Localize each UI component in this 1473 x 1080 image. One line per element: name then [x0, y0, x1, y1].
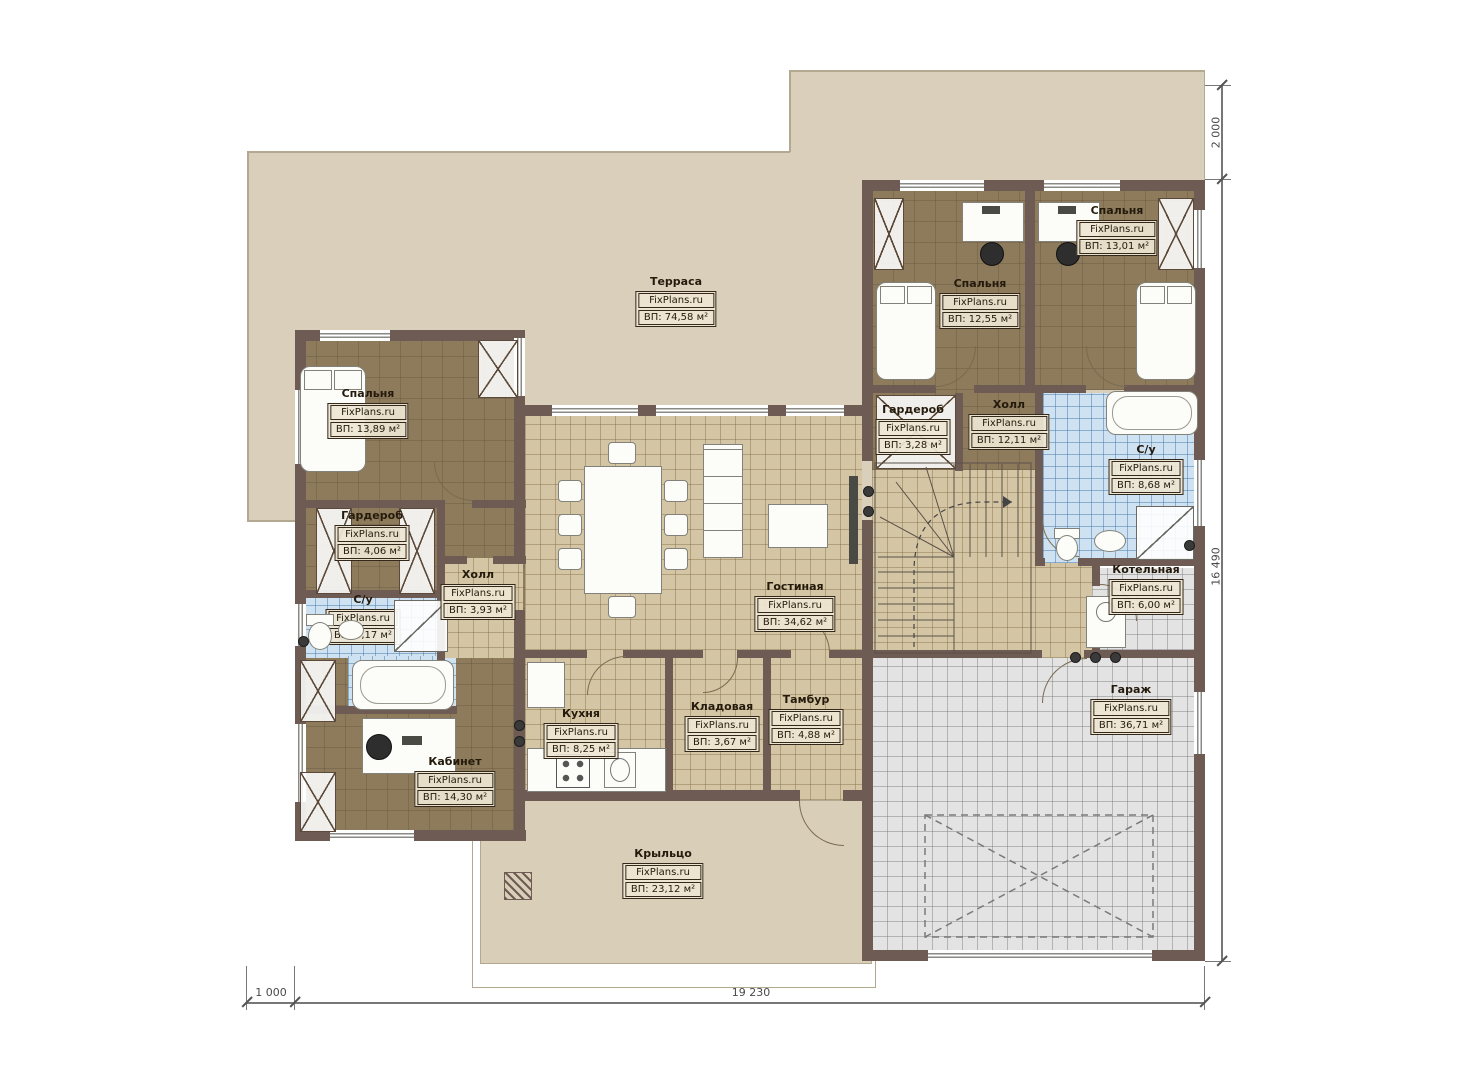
dimension-value-right-side: 16 490: [1210, 534, 1223, 600]
terrace-edge: [247, 151, 249, 522]
room-area: ВП: 23,12 м²: [625, 882, 701, 897]
porch-column: [504, 872, 532, 900]
room-info-box: FixPlans.ru ВП: 3,67 м²: [685, 716, 760, 753]
room-name: Тамбур: [769, 694, 844, 707]
room-area: ВП: 8,68 м²: [1111, 478, 1181, 493]
wall: [1025, 180, 1035, 392]
room-label-bedroom-left: Спальня FixPlans.ru ВП: 13,89 м²: [327, 388, 408, 439]
room-area: ВП: 13,89 м²: [330, 422, 406, 437]
utility-dot: [1184, 540, 1195, 551]
room-name: Гостиная: [754, 581, 835, 594]
chair: [608, 442, 636, 464]
room-label-vestibule: Тамбур FixPlans.ru ВП: 4,88 м²: [769, 694, 844, 745]
room-label-wardrobe-right: Гардероб FixPlans.ru ВП: 3,28 м²: [876, 404, 951, 455]
room-label-bath-left: С/у FixPlans.ru ВП: 5,17 м²: [326, 594, 401, 645]
room-info-box: FixPlans.ru ВП: 23,12 м²: [622, 863, 703, 900]
room-label-storage: Кладовая FixPlans.ru ВП: 3,67 м²: [685, 701, 760, 752]
brand-text: FixPlans.ru: [1093, 701, 1169, 716]
wall: [829, 650, 862, 658]
room-info-box: FixPlans.ru ВП: 12,55 м²: [939, 293, 1020, 330]
wardrobe-cabinet: [1158, 198, 1194, 270]
chair: [664, 480, 688, 502]
brand-text: FixPlans.ru: [328, 611, 398, 626]
room-name: Терраса: [635, 276, 716, 289]
room-name: Гараж: [1090, 684, 1171, 697]
room-info-box: FixPlans.ru ВП: 8,25 м²: [544, 723, 619, 760]
brand-text: FixPlans.ru: [757, 598, 833, 613]
room-name: Гардероб: [876, 404, 951, 417]
room-name: Холл: [441, 569, 516, 582]
wall: [665, 650, 673, 801]
bathtub-inner: [360, 666, 446, 704]
terrace-edge: [1204, 70, 1206, 180]
room-area: ВП: 12,11 м²: [971, 433, 1047, 448]
room-name: Крыльцо: [622, 848, 703, 861]
room-info-box: FixPlans.ru ВП: 13,01 м²: [1076, 220, 1157, 257]
chair: [558, 480, 582, 502]
coffee-table: [768, 504, 828, 548]
brand-text: FixPlans.ru: [337, 527, 407, 542]
window: [786, 405, 844, 416]
utility-dot: [298, 636, 309, 647]
staircase: [874, 462, 1032, 654]
wall: [1035, 558, 1045, 566]
dimension-line-horizontal: [247, 1002, 1205, 1004]
room-name: Кабинет: [414, 756, 495, 769]
pillow: [907, 286, 932, 304]
room-area: ВП: 3,93 м²: [443, 603, 513, 618]
room-name: Холл: [968, 399, 1049, 412]
chair: [558, 548, 582, 570]
dimension-value-right-top: 2 000: [1210, 103, 1223, 163]
wardrobe-cabinet: [478, 340, 518, 398]
sink-bowl: [610, 758, 630, 782]
room-area: ВП: 3,67 м²: [687, 735, 757, 750]
wardrobe-cabinet: [300, 660, 336, 722]
room-name: Спальня: [939, 278, 1020, 291]
brand-text: FixPlans.ru: [625, 865, 701, 880]
window: [1194, 692, 1205, 754]
window: [1044, 180, 1120, 191]
room-label-bedroom-right: Спальня FixPlans.ru ВП: 13,01 м²: [1076, 205, 1157, 256]
pillow: [1167, 286, 1192, 304]
bathtub-inner: [1112, 396, 1192, 430]
brand-text: FixPlans.ru: [638, 293, 714, 308]
terrace-edge: [247, 151, 790, 153]
room-info-box: FixPlans.ru ВП: 13,89 м²: [327, 403, 408, 440]
utility-dot: [514, 736, 525, 747]
room-label-porch: Крыльцо FixPlans.ru ВП: 23,12 м²: [622, 848, 703, 899]
brand-text: FixPlans.ru: [878, 421, 948, 436]
monitor: [402, 736, 422, 745]
garage-corridor-floor: [1035, 560, 1092, 658]
dimension-value-bottom-left: 1 000: [242, 986, 300, 999]
room-name: Кладовая: [685, 701, 760, 714]
room-name: Кухня: [544, 708, 619, 721]
window: [320, 330, 390, 341]
wall: [955, 393, 963, 471]
brand-text: FixPlans.ru: [971, 416, 1047, 431]
room-label-terrace: Терраса FixPlans.ru ВП: 74,58 м²: [635, 276, 716, 327]
room-info-box: FixPlans.ru ВП: 74,58 м²: [635, 291, 716, 328]
utility-dot: [863, 486, 874, 497]
washbasin: [338, 620, 364, 640]
room-label-bath-right: С/у FixPlans.ru ВП: 8,68 м²: [1109, 444, 1184, 495]
wall: [862, 180, 873, 461]
brand-text: FixPlans.ru: [330, 405, 406, 420]
room-label-office: Кабинет FixPlans.ru ВП: 14,30 м²: [414, 756, 495, 807]
wall: [472, 500, 526, 508]
brand-text: FixPlans.ru: [1111, 461, 1181, 476]
toilet-bowl: [1056, 535, 1078, 561]
window: [1194, 460, 1205, 526]
brand-text: FixPlans.ru: [771, 711, 841, 726]
wall: [974, 385, 1086, 393]
utility-dot: [1090, 652, 1101, 663]
brand-text: FixPlans.ru: [546, 725, 616, 740]
room-area: ВП: 4,88 м²: [771, 728, 841, 743]
room-label-wardrobe-left: Гардероб FixPlans.ru ВП: 4,06 м²: [335, 510, 410, 561]
garage-door: [928, 950, 1152, 961]
monitor: [982, 206, 1000, 214]
wall: [1092, 566, 1100, 586]
chair: [664, 548, 688, 570]
terrace-edge: [247, 520, 295, 522]
room-area: ВП: 36,71 м²: [1093, 718, 1169, 733]
room-area: ВП: 14,30 м²: [417, 790, 493, 805]
room-area: ВП: 12,55 м²: [942, 312, 1018, 327]
terrace-edge: [789, 70, 791, 152]
room-area: ВП: 13,01 м²: [1079, 239, 1155, 254]
room-info-box: FixPlans.ru ВП: 14,30 м²: [414, 771, 495, 808]
window: [1194, 210, 1205, 268]
terrace-edge: [789, 70, 1205, 72]
wall: [862, 520, 873, 961]
office-chair: [980, 242, 1004, 266]
room-label-garage: Гараж FixPlans.ru ВП: 36,71 м²: [1090, 684, 1171, 735]
room-label-bedroom-mid: Спальня FixPlans.ru ВП: 12,55 м²: [939, 278, 1020, 329]
room-area: ВП: 6,00 м²: [1111, 598, 1181, 613]
brand-text: FixPlans.ru: [443, 586, 513, 601]
toilet-bowl: [308, 622, 332, 650]
pillow: [880, 286, 905, 304]
brand-text: FixPlans.ru: [417, 773, 493, 788]
office-chair: [366, 734, 392, 760]
utility-dot: [863, 506, 874, 517]
room-name: С/у: [326, 594, 401, 607]
wall: [872, 385, 936, 393]
wall: [443, 556, 467, 564]
wall: [1084, 650, 1205, 658]
utility-dot: [514, 720, 525, 731]
parking-marking: [924, 814, 1154, 938]
dimension-line-vertical: [1221, 85, 1223, 962]
washbasin: [1094, 530, 1126, 552]
room-label-kitchen: Кухня FixPlans.ru ВП: 8,25 м²: [544, 708, 619, 759]
brand-text: FixPlans.ru: [687, 718, 757, 733]
window: [552, 405, 638, 416]
brand-text: FixPlans.ru: [1111, 581, 1181, 596]
utility-dot: [1110, 652, 1121, 663]
fridge: [527, 662, 565, 708]
room-name: Гардероб: [335, 510, 410, 523]
room-area: ВП: 8,25 м²: [546, 742, 616, 757]
room-info-box: FixPlans.ru ВП: 3,28 м²: [876, 419, 951, 456]
cabinet: [703, 444, 743, 558]
room-name: Спальня: [327, 388, 408, 401]
dimension-value-bottom-width: 19 230: [696, 986, 806, 999]
wall: [525, 650, 587, 658]
room-area: ВП: 3,28 м²: [878, 438, 948, 453]
tv-panel: [849, 476, 858, 564]
shower: [1136, 506, 1194, 560]
room-label-living: Гостиная FixPlans.ru ВП: 34,62 м²: [754, 581, 835, 632]
wall: [737, 650, 763, 658]
wall: [295, 500, 437, 508]
room-info-box: FixPlans.ru ВП: 3,93 м²: [441, 584, 516, 621]
wall: [673, 650, 703, 658]
room-label-hall-right: Холл FixPlans.ru ВП: 12,11 м²: [968, 399, 1049, 450]
chair: [664, 514, 688, 536]
room-name: С/у: [1109, 444, 1184, 457]
pillow: [304, 370, 332, 390]
monitor: [1058, 206, 1076, 214]
room-info-box: FixPlans.ru ВП: 4,88 м²: [769, 709, 844, 746]
brand-text: FixPlans.ru: [1079, 222, 1155, 237]
wardrobe-cabinet: [300, 772, 336, 832]
room-info-box: FixPlans.ru ВП: 34,62 м²: [754, 596, 835, 633]
chair: [608, 596, 636, 618]
room-info-box: FixPlans.ru ВП: 4,06 м²: [335, 525, 410, 562]
window: [900, 180, 984, 191]
room-area: ВП: 74,58 м²: [638, 310, 714, 325]
room-name: Котельная: [1109, 564, 1184, 577]
room-label-boiler: Котельная FixPlans.ru ВП: 6,00 м²: [1109, 564, 1184, 615]
wall: [771, 650, 791, 658]
room-info-box: FixPlans.ru ВП: 8,68 м²: [1109, 459, 1184, 496]
dining-table: [584, 466, 662, 594]
room-info-box: FixPlans.ru ВП: 12,11 м²: [968, 414, 1049, 451]
room-label-hall-left: Холл FixPlans.ru ВП: 3,93 м²: [441, 569, 516, 620]
pillow: [1140, 286, 1165, 304]
floor-plan: Терраса FixPlans.ru ВП: 74,58 м² Спальня…: [0, 0, 1473, 1080]
window: [656, 405, 768, 416]
room-area: ВП: 34,62 м²: [757, 615, 833, 630]
brand-text: FixPlans.ru: [942, 295, 1018, 310]
room-info-box: FixPlans.ru ВП: 6,00 м²: [1109, 579, 1184, 616]
wardrobe-cabinet: [874, 198, 904, 270]
room-info-box: FixPlans.ru ВП: 36,71 м²: [1090, 699, 1171, 736]
room-area: ВП: 4,06 м²: [337, 544, 407, 559]
room-name: Спальня: [1076, 205, 1157, 218]
utility-dot: [1070, 652, 1081, 663]
window: [330, 830, 414, 841]
chair: [558, 514, 582, 536]
wall: [843, 790, 862, 801]
wall: [493, 556, 526, 564]
